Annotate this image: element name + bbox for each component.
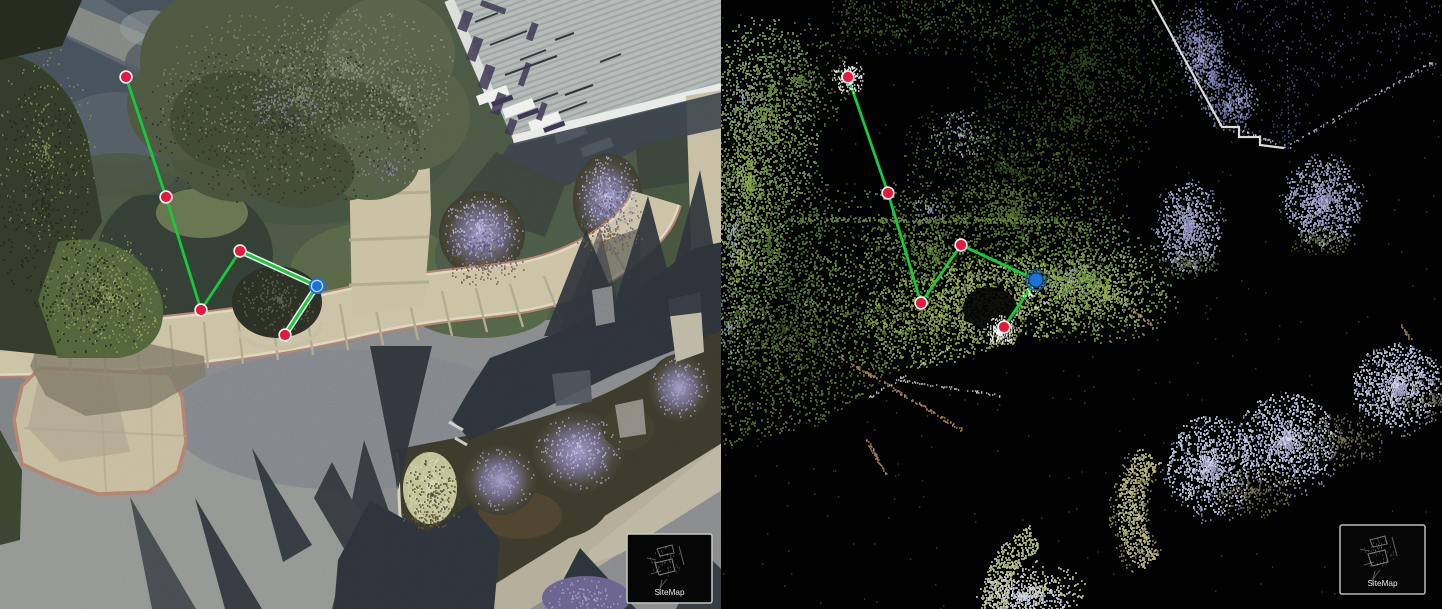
svg-text:SiteMap: SiteMap <box>1367 579 1397 588</box>
svg-text:SiteMap: SiteMap <box>654 588 684 597</box>
